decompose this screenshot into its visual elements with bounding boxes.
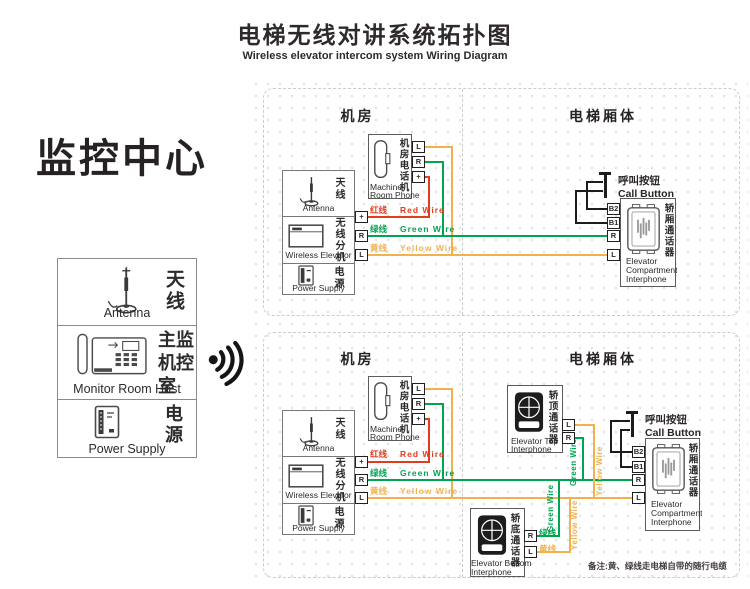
compartment-interphone-label-en1: Elevator	[626, 257, 657, 266]
speaker-icon	[477, 514, 507, 556]
compartment-interphone-label-en3: Interphone	[651, 518, 692, 527]
monitor-center-panel: 天线 Antenna 主监机控室 Monitor Room Host 电源	[57, 258, 197, 458]
wire-call-button	[620, 429, 630, 431]
wire-green	[366, 235, 608, 237]
wireless-unit-label-en: Wireless Elevator	[282, 251, 355, 260]
compartment-interphone-label-en3: Interphone	[626, 275, 667, 284]
call-button-label-en: Call Button	[645, 428, 701, 439]
panel-antenna-label-cn: 天线	[164, 269, 183, 319]
wire-label-green-en: Green Wire	[400, 225, 455, 234]
terminal-r: R	[412, 156, 425, 168]
footnote: 备注:黄、绿线走电梯自带的随行电缆	[588, 562, 727, 571]
antenna-label-cn: 天线	[333, 177, 343, 203]
wire-label-yellow-en: Yellow Wire	[400, 244, 458, 253]
wire-green	[424, 161, 444, 163]
wire-label-yellow-cn: 黄线	[370, 244, 387, 253]
elevator-car-header: 电梯厢体	[558, 106, 648, 126]
panel-host-label-en: Monitor Room Host	[58, 382, 196, 396]
page-title: 电梯无线对讲系统拓扑图	[0, 16, 750, 50]
wire-call-button	[610, 420, 630, 422]
terminal-r: R	[412, 398, 425, 410]
wire-label-green-cn: 绿线	[370, 469, 387, 478]
wire-yellow	[451, 146, 453, 256]
speaker-icon	[514, 391, 544, 433]
wire-call-button	[575, 222, 608, 224]
wire-label-yellow-cn: 黄线	[539, 545, 556, 554]
wire-call-button	[575, 190, 577, 224]
wire-green	[558, 480, 560, 537]
wire-call-button	[586, 181, 588, 210]
terminal-b2: B2	[607, 203, 620, 215]
section-divider-bottom	[462, 333, 463, 577]
antenna-label-en: Antenna	[282, 444, 355, 453]
terminal-b1: B1	[632, 461, 645, 473]
wire-call-button	[586, 181, 603, 183]
wire-label-yellow-en: Yellow Wire	[400, 487, 458, 496]
wire-call-button	[586, 208, 608, 210]
vertical-wire-label-yellow: Yellow Wire	[596, 440, 604, 496]
terminal-l: L	[562, 419, 575, 431]
wire-label-yellow-cn: 黄线	[370, 487, 387, 496]
terminal-l: L	[355, 492, 368, 504]
vertical-wire-label-green: Green Wire	[570, 440, 578, 486]
terminal-l: L	[524, 546, 537, 558]
page-subtitle: Wireless elevator intercom system Wiring…	[0, 50, 750, 62]
section-divider-top	[462, 89, 463, 315]
elevator-top-interphone-label-en2: Interphone	[511, 445, 552, 454]
terminal-l: L	[632, 492, 645, 504]
terminal-r: R	[355, 230, 368, 242]
terminal-plus: +	[355, 456, 368, 468]
wire-green	[424, 403, 444, 405]
panel-power-label-cn: 电源	[164, 404, 182, 448]
wire-yellow	[575, 424, 595, 426]
wire-call-button	[620, 429, 622, 468]
antenna-label-en: Antenna	[282, 204, 355, 213]
machine-room-header: 机房	[320, 106, 395, 126]
antenna-label-cn: 天线	[333, 417, 343, 443]
wireless-signal-icon	[202, 332, 256, 386]
terminal-l: L	[607, 249, 620, 261]
call-button-label-en: Call Button	[618, 189, 674, 200]
power-label-en: Power Supply	[282, 284, 355, 293]
terminal-r: R	[524, 530, 537, 542]
power-supply-icon	[94, 405, 120, 439]
terminal-plus: +	[412, 171, 425, 183]
wire-label-red-en: Red Wire	[400, 450, 445, 459]
terminal-r: R	[607, 230, 620, 242]
terminal-plus: +	[412, 413, 425, 425]
wireless-unit-icon	[288, 224, 324, 248]
panel-divider	[58, 399, 196, 400]
wiring-diagram-page: 电梯无线对讲系统拓扑图 Wireless elevator intercom s…	[0, 0, 750, 589]
terminal-b1: B1	[607, 217, 620, 229]
power-label-en: Power Supply	[282, 524, 355, 533]
elevator-car-header: 电梯厢体	[558, 349, 648, 369]
terminal-l: L	[355, 249, 368, 261]
wire-label-green-cn: 绿线	[539, 529, 556, 538]
wire-red	[366, 461, 430, 463]
wire-label-red-en: Red Wire	[400, 206, 445, 215]
wire-yellow	[366, 254, 608, 256]
vertical-wire-label-yellow: Yellow Wire	[571, 500, 579, 550]
machine-room-phone-label-en2: Room Phone	[370, 191, 420, 200]
wire-label-red-cn: 红线	[370, 450, 387, 459]
wire-call-button	[610, 420, 612, 453]
wire-call-button	[610, 451, 634, 453]
wireless-unit-label-en: Wireless Elevator	[282, 491, 355, 500]
call-button-label-cn: 呼叫按钮	[645, 415, 687, 426]
wireless-unit-icon	[288, 464, 324, 488]
wire-red	[366, 216, 430, 218]
wire-label-green-en: Green Wire	[400, 469, 455, 478]
terminal-r: R	[355, 474, 368, 486]
terminal-l: L	[412, 141, 425, 153]
wire-yellow	[451, 388, 453, 499]
wire-label-green-cn: 绿线	[370, 225, 387, 234]
wire-yellow	[424, 146, 453, 148]
compartment-interphone-label-cn: 轿厢通话器	[687, 443, 697, 501]
phone-handset-icon	[372, 139, 394, 181]
intercom-panel-icon	[626, 203, 661, 255]
terminal-b2: B2	[632, 446, 645, 458]
vertical-wire-label-green: Green Wire	[547, 484, 555, 532]
panel-divider	[58, 325, 196, 326]
intercom-panel-icon	[651, 443, 686, 495]
compartment-interphone-label-en1: Elevator	[651, 500, 682, 509]
terminal-l: L	[412, 383, 425, 395]
desk-phone-icon	[68, 329, 156, 379]
terminal-r: R	[632, 474, 645, 486]
terminal-r: R	[562, 432, 575, 444]
wire-yellow	[424, 388, 453, 390]
wire-green	[582, 437, 584, 481]
call-button-label-cn: 呼叫按钮	[618, 176, 660, 187]
phone-handset-icon	[372, 381, 394, 423]
elevator-bottom-interphone-label-en2: Interphone	[471, 568, 512, 577]
monitor-center-title: 监控中心	[36, 126, 208, 184]
machine-room-header: 机房	[320, 349, 395, 369]
machine-room-phone-label-en2: Room Phone	[370, 433, 420, 442]
wire-call-button	[575, 190, 603, 192]
terminal-plus: +	[355, 211, 368, 223]
compartment-interphone-label-cn: 轿厢通话器	[663, 203, 673, 261]
wire-label-red-cn: 红线	[370, 206, 387, 215]
